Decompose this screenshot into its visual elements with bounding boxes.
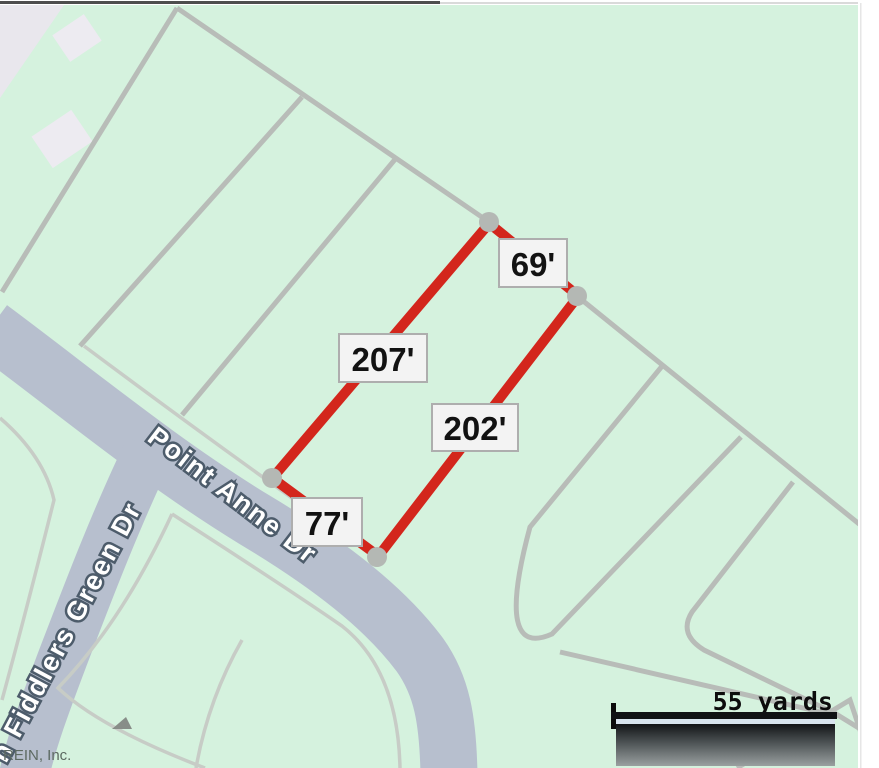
measurement-label-text: 202' [444, 410, 507, 447]
measurement-label-207: 207' [339, 334, 427, 382]
vertex-marker [367, 547, 387, 567]
plat-map: Point Anne Dr n Fiddlers Green Dr 69' 20… [0, 0, 879, 768]
frame-line-top-light [440, 2, 858, 4]
frame-line-right [860, 3, 862, 768]
measurement-label-text: 207' [352, 341, 415, 378]
scale-bar-highlight [616, 719, 835, 724]
frame-line-top-dark [0, 1, 440, 4]
measurement-label-77: 77' [292, 498, 362, 546]
vertex-marker [479, 212, 499, 232]
measurement-label-text: 69' [511, 246, 556, 283]
vertex-marker [262, 468, 282, 488]
measurement-label-69: 69' [499, 239, 567, 287]
measurement-label-text: 77' [305, 505, 350, 542]
scale-bar-label: 55 yards [713, 687, 833, 716]
vertex-marker [567, 286, 587, 306]
scale-bar-line [611, 712, 837, 719]
attribution-text: REIN, Inc. [3, 747, 71, 764]
scale-bar-shadow [616, 724, 835, 766]
map-canvas: Point Anne Dr n Fiddlers Green Dr 69' 20… [0, 0, 879, 768]
measurement-label-202: 202' [432, 404, 518, 451]
